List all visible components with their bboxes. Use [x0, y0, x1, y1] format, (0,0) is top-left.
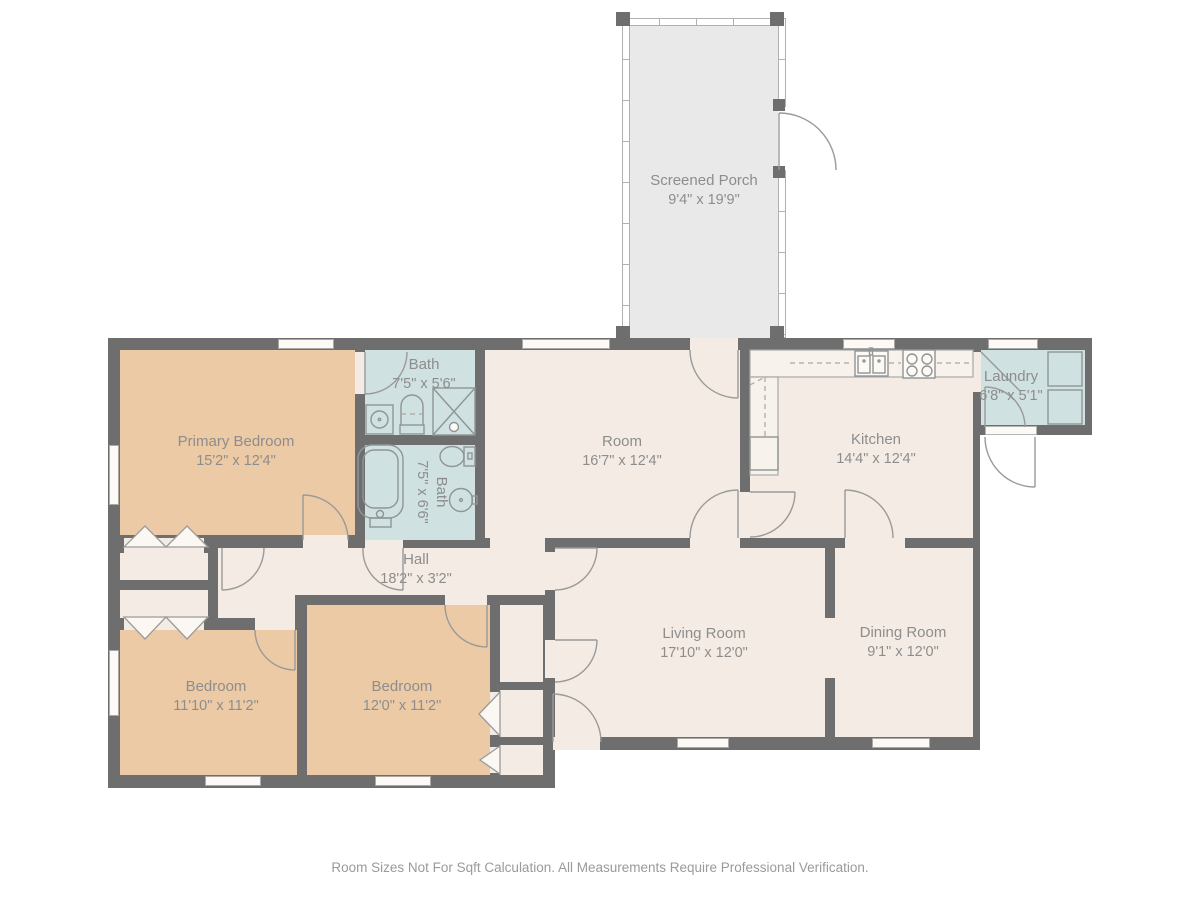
window: [677, 738, 729, 748]
window: [109, 650, 119, 716]
porch-post: [616, 12, 630, 26]
door-gap-primary-bedroom: [303, 535, 348, 548]
label-living-room: Living Room 17'10" x 12'0": [660, 624, 748, 664]
closet-middle-1: [500, 605, 543, 682]
closet-primary-2: [120, 590, 208, 618]
bifold-gap-closet-primary: [124, 538, 204, 553]
label-bath-lower: Bath 7'5" x 6'6": [411, 460, 451, 523]
door-gap-porch-room: [690, 338, 738, 350]
closet-primary-1: [120, 553, 208, 580]
door-gap-bedroom-middle: [445, 595, 487, 605]
porch-post: [770, 326, 784, 340]
window: [988, 339, 1038, 349]
label-screened-porch: Screened Porch 9'4" x 19'9": [650, 171, 758, 211]
porch-door-post: [773, 166, 785, 178]
door-gap-bedroom-left: [255, 618, 295, 630]
porch-door-post: [773, 99, 785, 111]
door-gap-hall-living: [545, 552, 555, 590]
window: [375, 776, 431, 786]
door-gap-living-closet: [545, 640, 555, 678]
screen-wall-top: [622, 18, 786, 26]
bifold-gap-closet-middle-3: [490, 747, 500, 773]
window: [522, 339, 610, 349]
window: [843, 339, 895, 349]
screen-wall-right-lower: [778, 170, 786, 338]
floor-plan: Screened Porch 9'4" x 19'9" Primary Bedr…: [0, 0, 1200, 900]
door-gap-bath-upper: [355, 352, 365, 394]
porch-door: [779, 113, 836, 170]
label-bedroom-middle: Bedroom 12'0" x 11'2": [363, 677, 441, 717]
bifold-gap-closet-bedroom-left: [124, 618, 204, 630]
door-gap-living-exterior: [553, 737, 600, 750]
closet-middle-3: [500, 745, 543, 775]
label-kitchen: Kitchen 14'4" x 12'4": [836, 430, 916, 470]
door-gap-room-kitchen: [740, 492, 750, 538]
label-hall: Hall 18'2" x 3'2": [380, 550, 451, 590]
label-bedroom-left: Bedroom 11'10" x 11'2": [173, 677, 258, 717]
bifold-gap-closet-middle-2: [490, 692, 500, 735]
screen-wall-right-upper: [778, 18, 786, 107]
label-primary-bedroom: Primary Bedroom 15'2" x 12'4": [178, 432, 295, 472]
screen-wall-left: [622, 18, 630, 338]
label-bath-upper: Bath 7'5" x 5'6": [392, 355, 455, 395]
porch-post: [770, 12, 784, 26]
opening-hall-room: [490, 538, 545, 548]
door-threshold-laundry: [985, 426, 1037, 435]
hall-left-leg: [218, 595, 295, 618]
laundry-exterior-door: [985, 437, 1035, 487]
porch-post: [616, 326, 630, 340]
window: [278, 339, 334, 349]
door-gap-room-living: [690, 538, 740, 548]
opening-living-dining: [825, 618, 835, 678]
door-gap-kitchen-dining: [845, 538, 905, 548]
label-laundry: Laundry 6'8" x 5'1": [979, 367, 1042, 407]
door-gap-bath-lower: [365, 540, 403, 548]
label-room: Room 16'7" x 12'4": [582, 432, 662, 472]
window: [872, 738, 930, 748]
label-dining-room: Dining Room 9'1" x 12'0": [860, 623, 947, 663]
disclaimer-text: Room Sizes Not For Sqft Calculation. All…: [0, 860, 1200, 875]
window: [109, 445, 119, 505]
closet-middle-2: [500, 690, 543, 737]
window: [205, 776, 261, 786]
